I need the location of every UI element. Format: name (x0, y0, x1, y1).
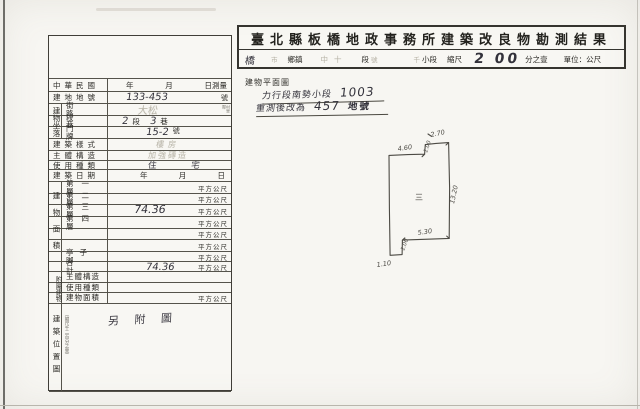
street-handwriting: 大松 (137, 102, 159, 117)
scale-label-scale: 縮尺 (447, 54, 462, 65)
scan-edge-left (3, 0, 5, 409)
annex-area-value: 平方公尺 (108, 293, 231, 303)
plot-sketch: 4.60 1.00 2.70 13.20 5.30 1.00 1.10 三 (372, 128, 502, 278)
roc-date-label: 中華民國 (49, 79, 108, 91)
arcade-value: 平方公尺 (108, 252, 231, 261)
alley-number-handwriting: 3 (149, 116, 157, 127)
floor-3-area-handwriting: 74.36 (133, 203, 167, 216)
location-group-label: 建物坐落 (50, 105, 62, 138)
scan-edge-right (637, 0, 638, 409)
dim-bottom-step: 1.00 (400, 238, 410, 252)
scale-denominator: 分之壹 (525, 54, 548, 65)
form-row-empty-strip (49, 36, 231, 79)
dim-top-left: 4.60 (397, 143, 412, 153)
construction-date-value: 年 月 日 (108, 170, 231, 181)
lane-section-char: 段 (132, 116, 140, 127)
annex-structure-value (108, 272, 231, 282)
building-style-handwriting: 樓房 (155, 139, 181, 150)
usage-type-value: 住 宅 (108, 161, 231, 169)
door-plate-label: 門牌 (62, 127, 108, 138)
position-map-handwriting: 另 附 圖 (108, 309, 179, 329)
plan-handwritten-note-2: 重測後改為 457 地號 (256, 96, 388, 117)
area-total-value: 74.36 平方公尺 (108, 262, 231, 271)
scale-faint-3: 號 (371, 54, 378, 64)
position-scale-note: （縮尺千二百分之壹） (64, 312, 70, 372)
scale-label-township: 鄉鎮 (288, 54, 303, 65)
scale-faint-4: 千 (414, 54, 421, 64)
usage-type-label: 使用種類 (49, 161, 108, 169)
scale-faint-2: 中十 (321, 54, 348, 65)
building-style-value: 樓房 (108, 139, 231, 150)
scale-value: 2 00 (473, 51, 521, 67)
blank-value: 平方公尺 (108, 229, 231, 239)
plot-center-mark: 三 (415, 193, 423, 202)
blank-label (62, 229, 108, 239)
area-total-label: 合計 (62, 262, 108, 271)
dim-top-step: 1.00 (423, 140, 433, 154)
form-row-floor-4: 第四層 平方公尺 (49, 217, 231, 229)
lot-number-value: 133-453 號 (108, 92, 231, 103)
scale-hand-city: 橋 (244, 52, 256, 67)
form-row-annex-usage: 使用種類 (49, 283, 231, 293)
note-2-text: 重測後改為 (255, 100, 307, 114)
scan-smudge (96, 8, 216, 11)
annex-usage-value (108, 283, 231, 292)
alley-char: 巷 (160, 116, 168, 127)
dim-bottom-left: 1.10 (376, 259, 391, 269)
blank-value: 平方公尺 (108, 240, 231, 251)
form-row-annex-area: 建物面積 平方公尺 (49, 293, 231, 304)
form-row-annex-structure: 主體構造 (49, 272, 231, 283)
lot-number-suffix: 號 (221, 93, 228, 103)
position-group-label: 建築位置圖 (50, 309, 62, 383)
dim-top-right: 2.70 (430, 128, 446, 139)
survey-form-table: 中華民國 年 月 日測量 建地地號 133-453 號 街路 大松 村里鄰 (48, 35, 232, 391)
page-title: 臺北縣板橋地政事務所建築改良物勘測結果 (251, 29, 612, 48)
scale-label-subsection: 小段 (422, 54, 437, 65)
form-row-area-total: 合計 74.36 平方公尺 (49, 262, 231, 272)
position-map-area: 另 附 圖 (62, 304, 231, 391)
lane-value: 2 段 3 巷 (108, 116, 231, 126)
street-value: 大松 村里鄰 (108, 104, 231, 115)
scale-label-section: 段 (362, 54, 370, 65)
form-row-roc-date: 中華民國 年 月 日測量 (49, 79, 231, 92)
floor-4-value: 平方公尺 (108, 217, 231, 228)
title-row: 臺北縣板橋地政事務所建築改良物勘測結果 (239, 27, 624, 50)
note-2-number: 457 (313, 99, 341, 113)
floor-1-value: 平方公尺 (108, 182, 231, 193)
scale-faint-1: 市 (271, 54, 278, 64)
scale-unit: 單位：公尺 (564, 54, 602, 65)
floor-4-label: 第四層 (62, 217, 108, 228)
street-tiny-note: 村里鄰 (222, 105, 230, 115)
door-plate-value: 15-2 號 (108, 127, 231, 138)
header-box: 臺北縣板橋地政事務所建築改良物勘測結果 橋 市 鄉鎮 中十 段 號 千 小段 縮… (237, 25, 626, 69)
scan-edge-bottom (0, 405, 640, 406)
form-row-door-plate: 門牌 15-2 號 (49, 127, 231, 139)
annex-area-label: 建物面積 (62, 293, 108, 303)
form-row-usage-type: 使用種類 住 宅 (49, 161, 231, 170)
scanned-survey-form-page: 臺北縣板橋地政事務所建築改良物勘測結果 橋 市 鄉鎮 中十 段 號 千 小段 縮… (0, 0, 640, 409)
note-2-suffix: 地號 (347, 98, 372, 112)
floor-3-value: 74.36 平方公尺 (108, 205, 231, 216)
lane-number-handwriting: 2 (121, 116, 129, 127)
annex-usage-label: 使用種類 (62, 283, 108, 292)
floor-2-value: 平方公尺 (108, 194, 231, 204)
form-row-position-map: 另 附 圖 (49, 304, 231, 392)
annex-group-label: 附屬建物 (50, 274, 62, 304)
dim-bottom: 5.30 (417, 227, 432, 237)
area-group-label: 建物面積 (50, 185, 62, 265)
form-row-area-blank-1: 平方公尺 (49, 229, 231, 240)
scale-row: 橋 市 鄉鎮 中十 段 號 千 小段 縮尺 2 00 分之壹 單位：公尺 (239, 50, 624, 68)
annex-structure-label: 主體構造 (62, 272, 108, 282)
roc-date-value: 年 月 日測量 (108, 79, 231, 91)
building-style-label: 建築樣式 (49, 139, 108, 150)
door-plate-handwriting: 15-2 (145, 127, 169, 138)
door-plate-suffix: 號 (173, 126, 180, 136)
